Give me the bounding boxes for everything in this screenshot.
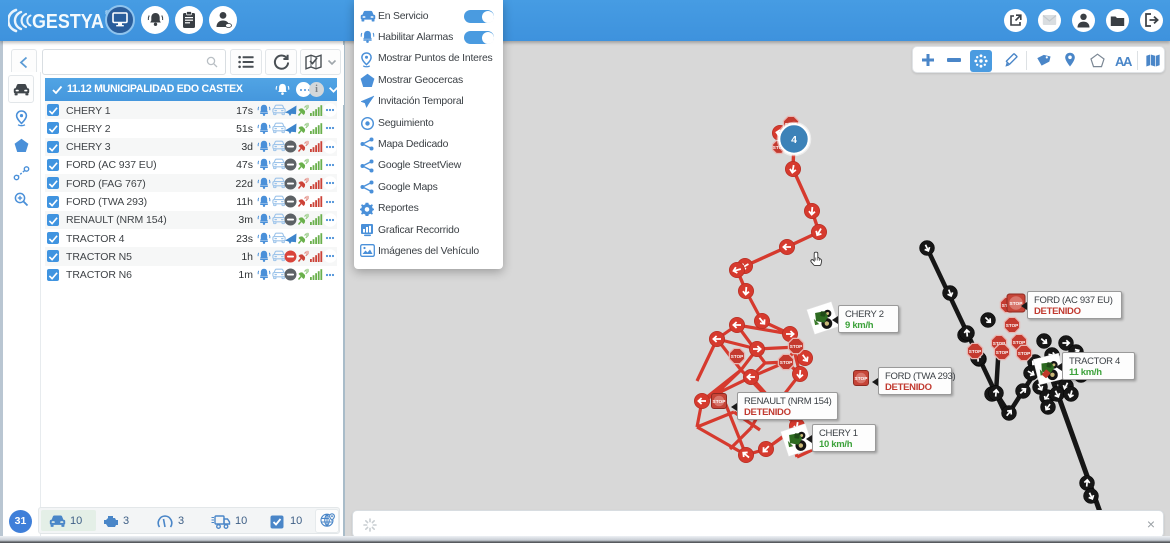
svg-text:4: 4	[791, 134, 797, 146]
svg-text:GESTYA: GESTYA	[32, 11, 104, 33]
svg-text:STOP: STOP	[1018, 351, 1030, 356]
svg-text:STOP: STOP	[996, 350, 1008, 355]
svg-text:A: A	[1123, 54, 1132, 67]
svg-text:STOP: STOP	[1013, 340, 1025, 345]
svg-text:STOP: STOP	[1006, 323, 1018, 328]
svg-text:STOP: STOP	[790, 344, 802, 349]
svg-text:STOP: STOP	[780, 360, 792, 365]
svg-text:STOP: STOP	[731, 354, 743, 359]
svg-text:STOP: STOP	[855, 376, 869, 382]
svg-text:STOP: STOP	[713, 399, 727, 405]
svg-text:STOP: STOP	[969, 349, 981, 354]
